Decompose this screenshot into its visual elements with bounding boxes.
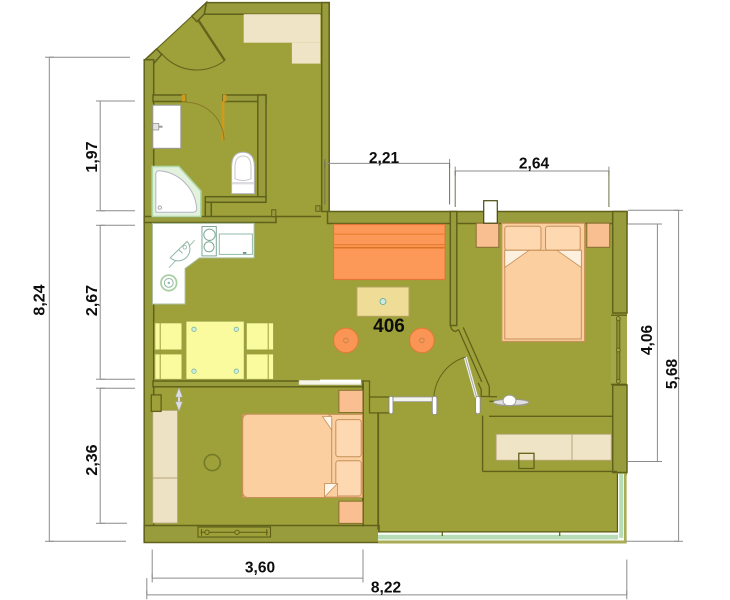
svg-text:4,06: 4,06 <box>639 325 656 356</box>
svg-text:2,21: 2,21 <box>369 150 400 167</box>
svg-text:2,64: 2,64 <box>519 156 550 173</box>
svg-text:2,36: 2,36 <box>84 444 101 475</box>
svg-text:2,67: 2,67 <box>84 285 101 316</box>
svg-text:5,68: 5,68 <box>664 359 681 390</box>
svg-text:3,60: 3,60 <box>245 560 275 577</box>
svg-text:8,24: 8,24 <box>32 284 49 315</box>
svg-text:1,97: 1,97 <box>84 141 101 172</box>
svg-text:406: 406 <box>373 316 405 337</box>
svg-text:8,22: 8,22 <box>371 580 401 597</box>
